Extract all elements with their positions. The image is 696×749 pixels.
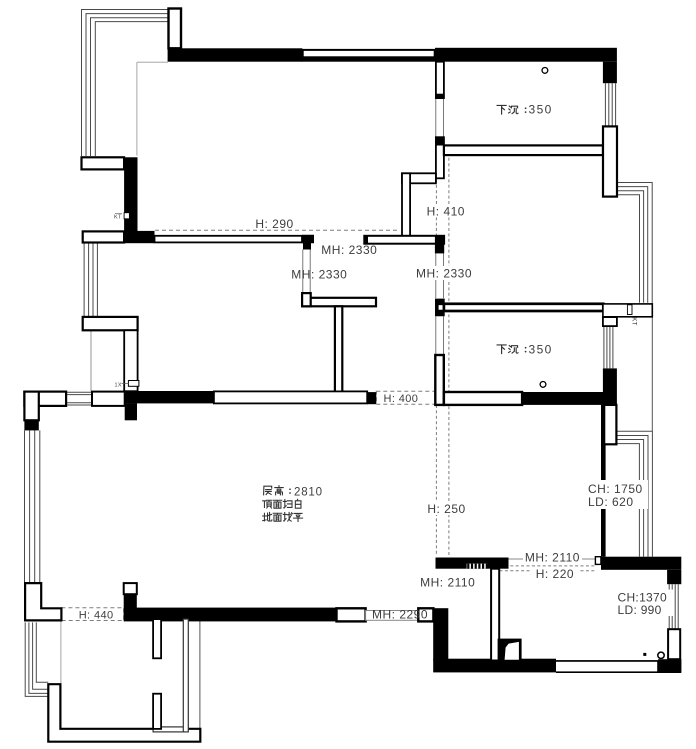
svg-text:MH: 2290: MH: 2290: [372, 607, 428, 621]
svg-text:H: 220: H: 220: [536, 567, 574, 581]
svg-text:H: 410: H: 410: [427, 205, 465, 219]
svg-text:H: 290: H: 290: [255, 217, 293, 231]
svg-text:CH: 1750: CH: 1750: [588, 482, 643, 496]
svg-text:MH: 2330: MH: 2330: [291, 268, 347, 282]
svg-text:LD: 620: LD: 620: [588, 495, 634, 509]
svg-text:MH: 2110: MH: 2110: [525, 551, 580, 565]
svg-text:H: 250: H: 250: [427, 502, 465, 516]
svg-text:1X: 1X: [115, 383, 122, 389]
svg-text:H: 440: H: 440: [79, 610, 114, 622]
svg-text:350: 350: [529, 342, 553, 356]
svg-text:MH: 2330: MH: 2330: [321, 243, 377, 257]
svg-text:KT: KT: [114, 214, 122, 220]
svg-text:KT: KT: [631, 317, 637, 326]
svg-text:LD: 990: LD: 990: [618, 603, 662, 617]
svg-text:MH: 2110: MH: 2110: [420, 575, 475, 589]
svg-text:2810: 2810: [294, 486, 323, 498]
svg-text:350: 350: [529, 103, 553, 117]
svg-text:MH: 2330: MH: 2330: [416, 266, 472, 280]
svg-text:H: 400: H: 400: [383, 393, 418, 405]
